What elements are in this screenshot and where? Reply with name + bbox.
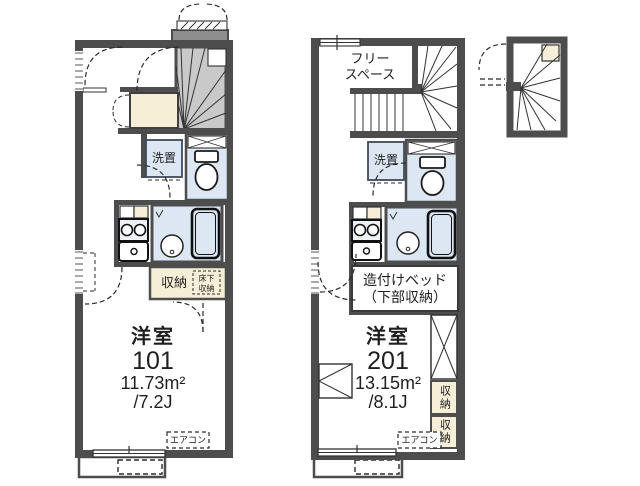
stairwell-door-arc <box>479 44 506 85</box>
stove-icon-101 <box>119 219 148 241</box>
floor-plan-drawing <box>0 0 640 486</box>
room-type-201: 洋室 <box>348 326 428 349</box>
bed-label-201: 造付けベッド （下部収納） <box>352 272 458 306</box>
storage-label-201-bottom: 収納 <box>431 416 457 448</box>
washer-label-101: 洗置 <box>146 140 182 177</box>
toilet-room-201 <box>406 140 457 202</box>
sink-icon-101 <box>119 242 148 261</box>
entrance-door-arc-right <box>204 4 227 20</box>
balcony-101 <box>79 457 165 477</box>
storage-label-201-top: 収納 <box>431 381 457 414</box>
underfloor-storage-label-101: 床下 収納 <box>194 274 219 293</box>
area-sqm-101: 11.73m² <box>103 373 203 394</box>
staircase-101 <box>176 47 226 131</box>
free-space-label-201: フリー スペース <box>328 51 412 84</box>
area-tatami-101: /7.2J <box>103 392 203 413</box>
washer-label-201: 洗置 <box>368 142 404 180</box>
room-number-101: 101 <box>113 347 193 376</box>
shelf-201 <box>431 315 457 379</box>
bathtub-icon-101 <box>192 209 219 258</box>
bathroom-201 <box>386 207 458 262</box>
entrance-door-arc-left <box>179 4 202 20</box>
storage-label-101: 収納 <box>152 267 196 299</box>
area-tatami-201: /8.1J <box>338 392 438 413</box>
bathroom-101 <box>152 205 222 262</box>
floor-plan-canvas: 洗置 収納 床下 収納 洋室 101 11.73m² /7.2J エアコン フリ… <box>0 0 640 486</box>
toilet-icon-201 <box>420 157 445 195</box>
kitchen-101 <box>119 206 148 261</box>
aircon-label-101: エアコン <box>167 432 209 448</box>
toilet-icon-101 <box>195 151 218 190</box>
room-type-101: 洋室 <box>113 326 193 349</box>
toilet-room-101 <box>186 134 228 200</box>
area-sqm-201: 13.15m² <box>338 373 438 394</box>
stairwell-2f <box>479 40 564 134</box>
entrance-porch-101 <box>172 4 228 44</box>
window-101-upper <box>75 51 83 91</box>
kitchen-201 <box>352 207 381 260</box>
room-number-201: 201 <box>348 347 428 376</box>
bathtub-icon-201 <box>428 211 455 258</box>
stove-icon-201 <box>352 220 381 241</box>
